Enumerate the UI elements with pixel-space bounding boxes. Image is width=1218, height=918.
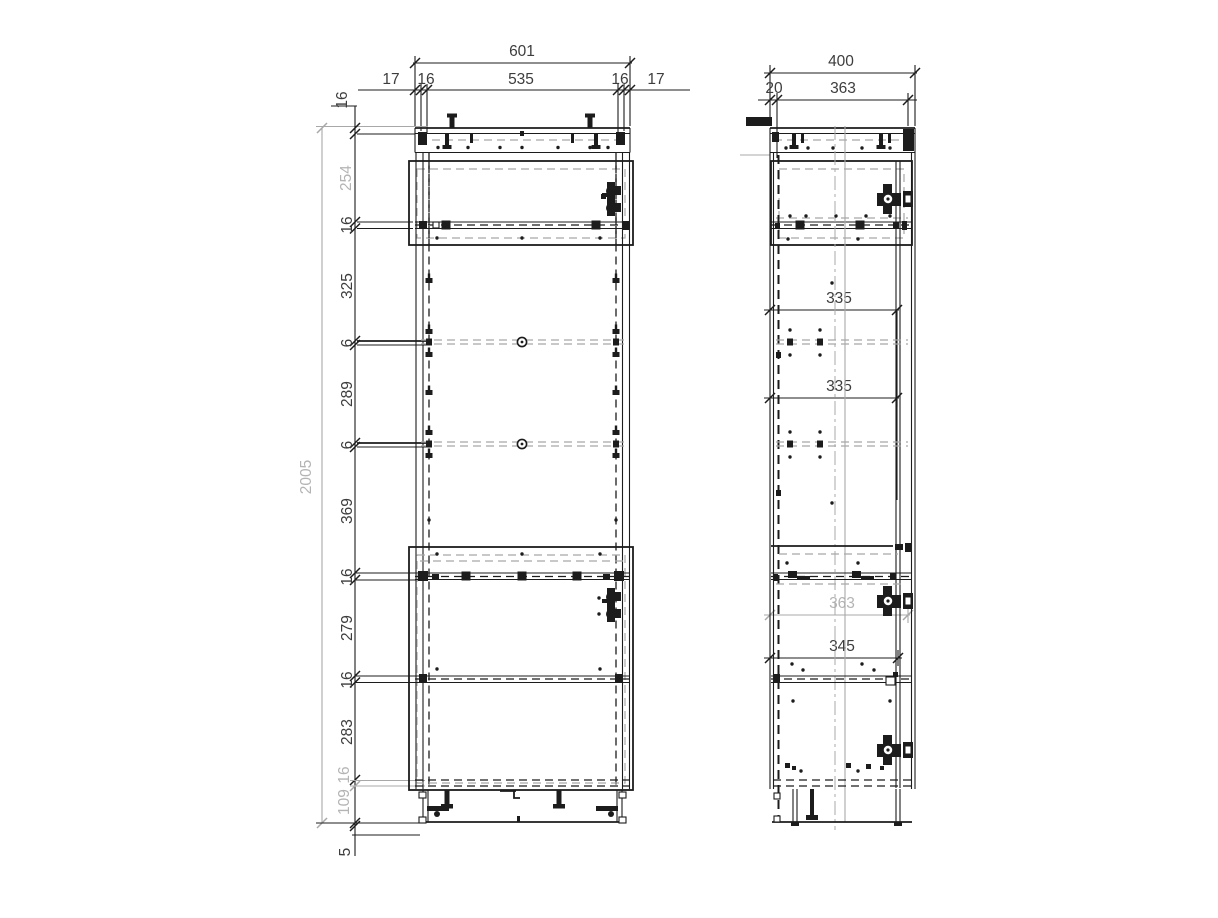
dim-front-h6: 6 — [339, 441, 356, 450]
cam-lock-icon — [592, 221, 601, 230]
dim-front-h7: 369 — [339, 498, 356, 524]
dim-front-chain-16-left: 16 — [417, 71, 434, 88]
cam-lock-icon — [442, 221, 451, 230]
dim-front-h9: 279 — [339, 615, 356, 641]
dim-front-h1: 254 — [338, 165, 355, 191]
dim-front-h0: 16 — [334, 91, 351, 108]
dim-front-chain-17-right: 17 — [647, 71, 664, 88]
dim-front-h8: 16 — [339, 568, 356, 585]
shelf-fitting-icon — [517, 337, 526, 346]
shelf-fitting-icon — [517, 439, 526, 448]
drawing-background — [0, 0, 1218, 913]
dim-side-overall-depth: 400 — [828, 53, 854, 70]
dim-front-chain-535: 535 — [508, 71, 534, 88]
cabinet-technical-drawing: 601 17 16 535 16 17 2005 — [0, 0, 1218, 913]
dim-front-h2: 16 — [339, 216, 356, 233]
dim-front-h3: 325 — [339, 273, 356, 299]
cam-lock-icon — [796, 221, 805, 230]
dim-side-chain-363: 363 — [830, 80, 856, 97]
dim-side-chain-20: 20 — [765, 80, 783, 97]
handle-icon — [746, 117, 772, 126]
dim-front-h12: 16 — [336, 766, 353, 783]
dim-side-335-lower: 335 — [826, 378, 852, 395]
dim-side-335-upper: 335 — [826, 290, 852, 307]
dim-front-overall-height: 2005 — [298, 460, 315, 494]
dim-front-h4: 6 — [339, 339, 356, 348]
cam-lock-icon — [462, 572, 471, 581]
dim-side-363-internal: 363 — [829, 595, 855, 612]
shelf-pin-icon — [787, 339, 793, 346]
dim-front-h14: 5 — [337, 848, 354, 857]
cam-lock-icon — [856, 221, 865, 230]
dim-front-chain-17-left: 17 — [382, 71, 399, 88]
technical-drawing-page: 601 17 16 535 16 17 2005 — [0, 0, 1218, 913]
dim-front-h13: 109 — [336, 789, 353, 815]
dim-front-chain-16-right: 16 — [611, 71, 628, 88]
dim-front-overall-width: 601 — [509, 43, 535, 60]
shelf-pin-icon — [817, 339, 823, 346]
dim-front-h5: 289 — [339, 381, 356, 407]
dim-front-h10: 16 — [339, 671, 356, 688]
dim-front-h11: 283 — [339, 719, 356, 745]
dim-side-345: 345 — [829, 638, 855, 655]
